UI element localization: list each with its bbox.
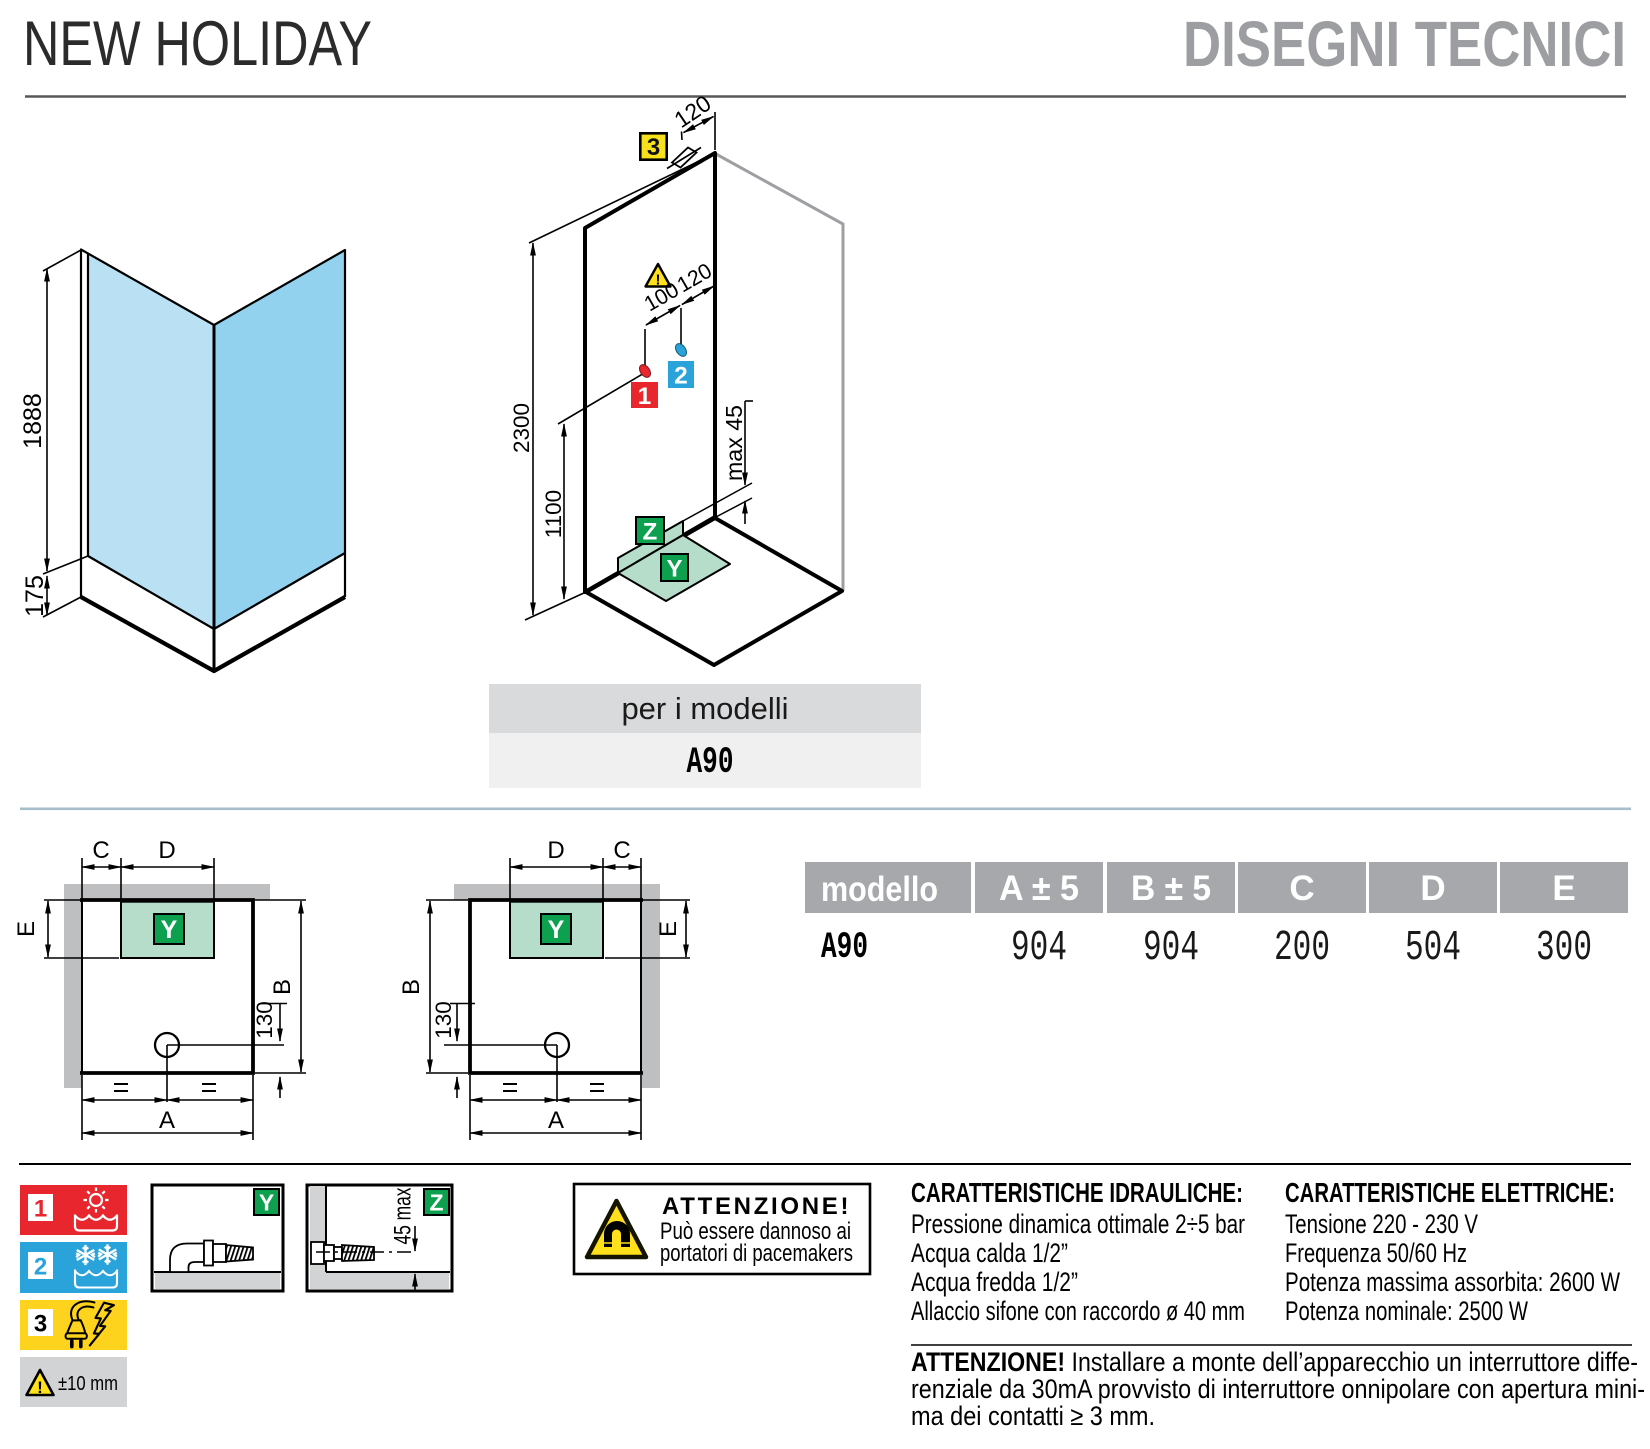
svg-text:Pressione dinamica ottimale 2÷: Pressione dinamica ottimale 2÷5 bar <box>911 1209 1245 1239</box>
svg-text:1100: 1100 <box>541 490 566 538</box>
svg-text:CARATTERISTICHE ELETTRICHE:: CARATTERISTICHE ELETTRICHE: <box>1285 1177 1615 1208</box>
svg-text:Acqua fredda 1/2”: Acqua fredda 1/2” <box>911 1267 1078 1297</box>
svg-text:45 max: 45 max <box>390 1188 417 1245</box>
svg-text:max 45: max 45 <box>721 405 747 481</box>
svg-text:Frequenza 50/60 Hz: Frequenza 50/60 Hz <box>1285 1238 1467 1268</box>
svg-text:A90: A90 <box>687 742 734 784</box>
svg-text:130: 130 <box>431 1001 456 1039</box>
svg-text:C: C <box>1289 869 1314 908</box>
svg-text:D: D <box>158 837 175 864</box>
svg-text:300: 300 <box>1536 923 1592 972</box>
svg-text:ATTENZIONE! Installare a monte: ATTENZIONE! Installare a monte dell’appa… <box>911 1347 1638 1377</box>
svg-text:175: 175 <box>21 575 49 617</box>
svg-text:1: 1 <box>34 1196 47 1223</box>
svg-text:E: E <box>655 921 682 937</box>
svg-text:ma dei contatti ≥ 3 mm.: ma dei contatti ≥ 3 mm. <box>911 1401 1155 1431</box>
svg-text:D: D <box>547 837 564 864</box>
svg-text:2300: 2300 <box>509 403 534 453</box>
svg-text:Z: Z <box>643 519 658 546</box>
svg-text:ATTENZIONE!: ATTENZIONE! <box>662 1193 852 1220</box>
svg-text:Y: Y <box>548 916 565 944</box>
svg-text:B: B <box>398 979 425 995</box>
svg-text:904: 904 <box>1011 923 1067 972</box>
svg-text:modello: modello <box>821 869 938 909</box>
svg-text:Y: Y <box>259 1190 274 1216</box>
svg-text:renziale da 30mA provvisto di: renziale da 30mA provvisto di interrutto… <box>911 1374 1645 1404</box>
svg-text:Allaccio sifone con raccordo ø: Allaccio sifone con raccordo ø 40 mm <box>911 1296 1245 1326</box>
svg-text:Acqua calda 1/2”: Acqua calda 1/2” <box>911 1238 1068 1268</box>
svg-text:1: 1 <box>638 383 652 410</box>
svg-text:3: 3 <box>647 134 660 161</box>
svg-text:130: 130 <box>252 1001 277 1039</box>
svg-text:E: E <box>1552 869 1575 908</box>
svg-text:Potenza nominale: 2500 W: Potenza nominale: 2500 W <box>1285 1296 1528 1326</box>
svg-text:1888: 1888 <box>19 393 47 449</box>
svg-text:Potenza massima assorbita: 260: Potenza massima assorbita: 2600 W <box>1285 1267 1620 1297</box>
svg-text:DISEGNI TECNICI: DISEGNI TECNICI <box>1183 8 1626 80</box>
svg-text:C: C <box>613 837 630 864</box>
svg-text:504: 504 <box>1405 923 1461 972</box>
svg-text:Y: Y <box>161 916 178 944</box>
svg-text:!: ! <box>37 1378 43 1397</box>
svg-text:904: 904 <box>1143 923 1199 972</box>
svg-text:A90: A90 <box>821 927 868 969</box>
svg-text:200: 200 <box>1274 923 1330 972</box>
svg-text:Tensione 220 - 230 V: Tensione 220 - 230 V <box>1285 1209 1478 1239</box>
svg-text:A: A <box>159 1107 175 1134</box>
svg-text:portatori di pacemakers: portatori di pacemakers <box>660 1240 853 1267</box>
svg-text:E: E <box>13 921 40 937</box>
svg-text:±10 mm: ±10 mm <box>58 1373 118 1395</box>
svg-text:D: D <box>1420 869 1445 908</box>
svg-text:NEW HOLIDAY: NEW HOLIDAY <box>23 9 372 79</box>
svg-text:B ± 5: B ± 5 <box>1131 869 1211 908</box>
svg-text:C: C <box>92 837 109 864</box>
svg-text:CARATTERISTICHE IDRAULICHE:: CARATTERISTICHE IDRAULICHE: <box>911 1177 1243 1208</box>
svg-text:per i modelli: per i modelli <box>621 691 788 726</box>
svg-text:2: 2 <box>674 363 688 390</box>
svg-text:A: A <box>548 1107 564 1134</box>
svg-text:Z: Z <box>429 1190 443 1216</box>
svg-text:3: 3 <box>34 1311 47 1338</box>
svg-text:B: B <box>269 979 296 995</box>
svg-text:A ± 5: A ± 5 <box>999 869 1079 908</box>
svg-text:Y: Y <box>666 556 682 583</box>
svg-text:2: 2 <box>34 1254 47 1281</box>
